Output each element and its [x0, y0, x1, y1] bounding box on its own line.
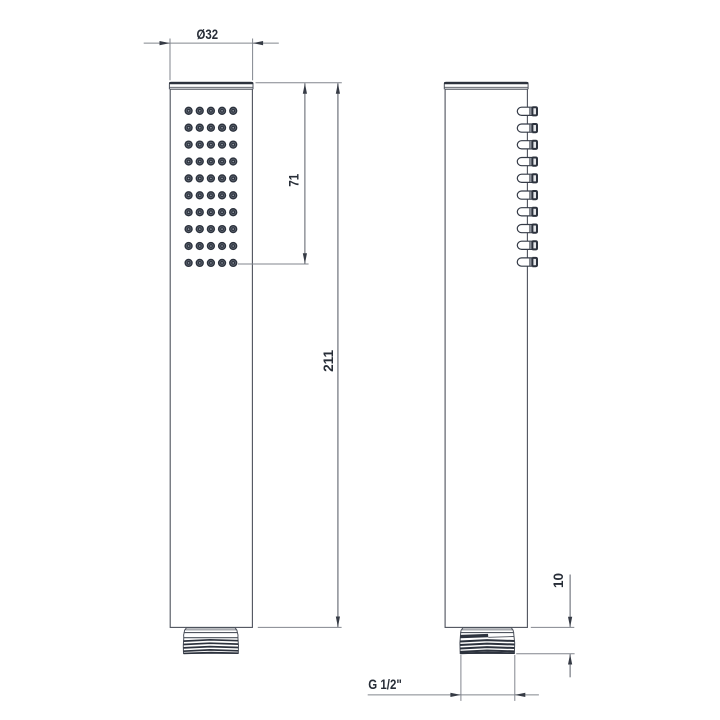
- svg-text:71: 71: [286, 174, 302, 187]
- svg-text:Ø32: Ø32: [197, 26, 219, 42]
- svg-text:10: 10: [550, 573, 566, 588]
- svg-text:G 1/2": G 1/2": [368, 676, 402, 692]
- svg-text:211: 211: [320, 350, 336, 372]
